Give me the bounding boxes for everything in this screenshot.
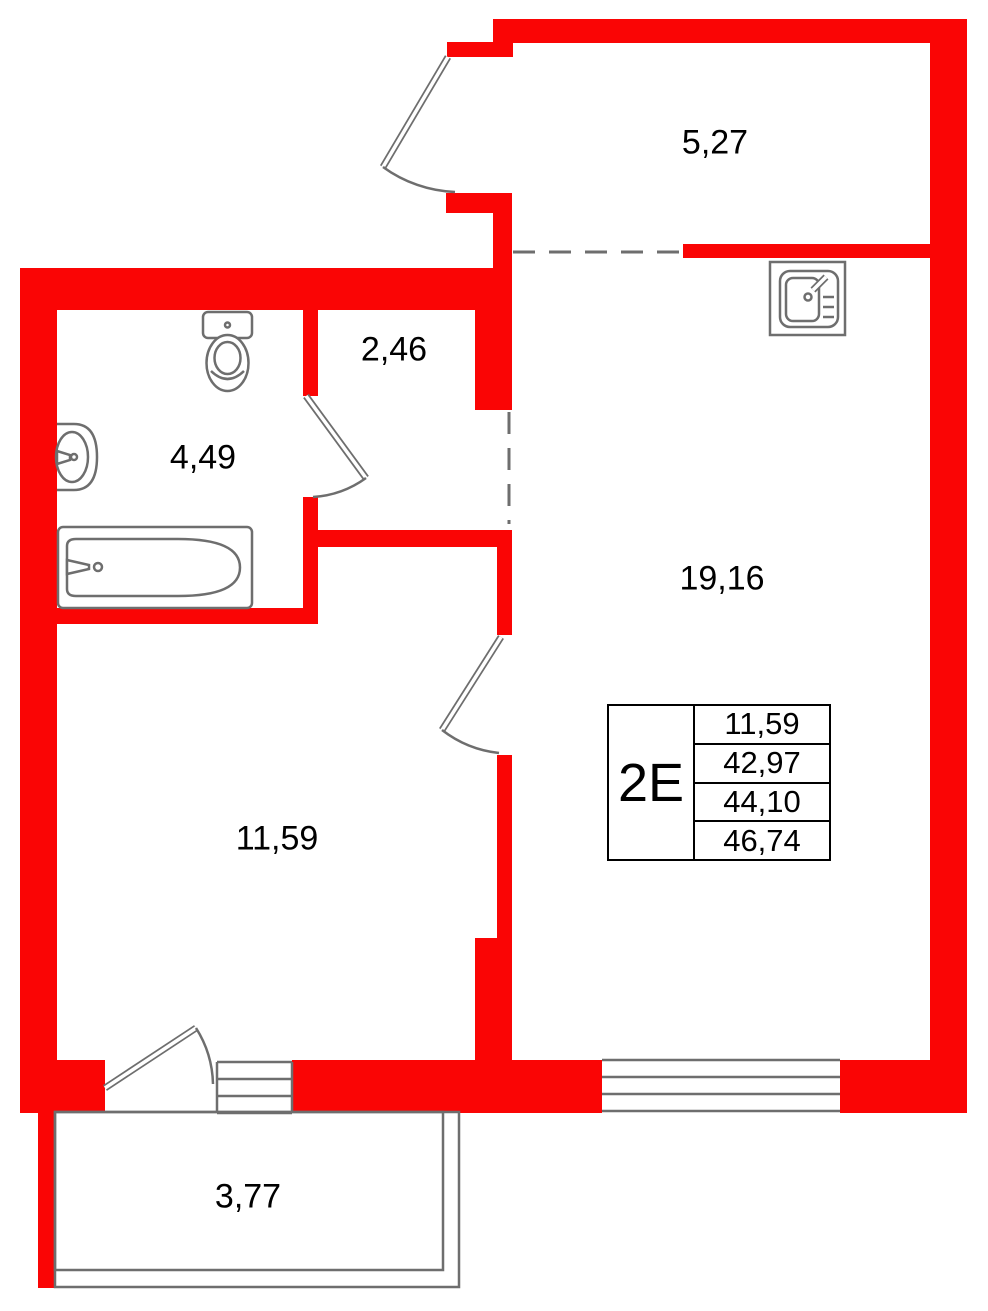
wall-top-outer [493, 19, 967, 43]
entry-door-icon [383, 57, 455, 192]
room-label-hallway: 2,46 [361, 331, 427, 370]
wall-bottom-left [57, 1060, 105, 1113]
unit-area-value-3: 44,10 [695, 784, 829, 823]
living-room-door-icon [442, 637, 501, 753]
floor-plan-page: { "plan": { "title": "apartment floor pl… [0, 0, 988, 1311]
wall-mid-vertical-3 [475, 938, 512, 1060]
wall-balcony-left-strip [38, 1113, 55, 1288]
wall-hallway-bottom [318, 530, 512, 547]
fixtures [56, 262, 845, 608]
wall-right-outer [930, 19, 967, 1113]
room-label-bedroom: 11,59 [236, 820, 319, 859]
unit-type-label: 2E [609, 706, 695, 859]
balcony-window-icon [217, 1062, 292, 1113]
unit-info-box: 2E 11,59 42,97 44,10 46,74 [607, 704, 831, 861]
unit-area-value-1: 11,59 [695, 706, 829, 745]
dashed-openings [509, 252, 683, 524]
wall-bottom-middle [292, 1060, 602, 1113]
wall-mid-vertical-1 [497, 547, 512, 635]
room-label-top-terrace: 5,27 [682, 124, 748, 163]
floor-plan-drawing [0, 0, 988, 1311]
wall-left-outer [20, 268, 57, 1113]
wall-bath-hall-divider-upper [303, 310, 318, 396]
wall-terrace-living-divider [683, 244, 930, 258]
kitchen-sink-icon [770, 262, 845, 335]
living-room-window-icon [602, 1060, 840, 1111]
wall-mid-vertical-2 [497, 755, 512, 938]
wall-entry-door-stub-upper [447, 42, 513, 57]
unit-area-value-2: 42,97 [695, 745, 829, 784]
bathroom-door-icon [306, 396, 366, 497]
bathroom-sink-icon [56, 424, 97, 490]
bathtub-icon [58, 527, 252, 608]
wall-bath-hall-divider-lower [303, 497, 318, 622]
room-label-balcony: 3,77 [215, 1178, 281, 1217]
balcony-door-icon [105, 1028, 213, 1088]
room-label-bathroom: 4,49 [170, 439, 236, 478]
wall-hall-living-upper [475, 310, 512, 410]
wall-top-connector [493, 193, 512, 270]
unit-area-value-4: 46,74 [695, 822, 829, 859]
wall-bathroom-bottom [53, 608, 318, 624]
wall-top-left-section [20, 268, 512, 310]
room-label-kitchen-living: 19,16 [679, 560, 764, 599]
toilet-icon [203, 312, 252, 391]
